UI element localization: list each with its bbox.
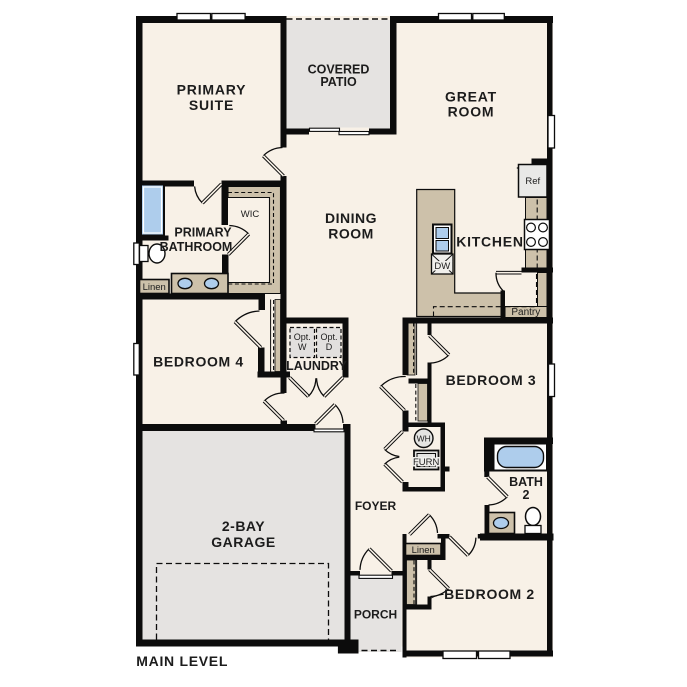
svg-text:BEDROOM 3: BEDROOM 3 bbox=[446, 372, 537, 388]
svg-text:FOYER: FOYER bbox=[355, 499, 397, 513]
svg-text:Linen: Linen bbox=[143, 282, 166, 293]
svg-text:MAIN LEVEL: MAIN LEVEL bbox=[136, 653, 228, 669]
svg-text:BATH: BATH bbox=[509, 475, 543, 489]
svg-text:ROOM: ROOM bbox=[328, 226, 374, 242]
svg-text:2-BAY: 2-BAY bbox=[222, 518, 265, 534]
svg-text:D: D bbox=[326, 342, 333, 352]
svg-text:GARAGE: GARAGE bbox=[211, 534, 275, 550]
svg-text:WH: WH bbox=[417, 433, 431, 443]
svg-text:PORCH: PORCH bbox=[354, 607, 397, 621]
svg-text:ROOM: ROOM bbox=[448, 104, 495, 120]
svg-text:LAUNDRY: LAUNDRY bbox=[286, 359, 347, 373]
svg-text:Pantry: Pantry bbox=[511, 307, 540, 318]
svg-text:Opt.: Opt. bbox=[294, 332, 311, 342]
svg-text:BEDROOM 2: BEDROOM 2 bbox=[444, 586, 535, 602]
svg-text:KITCHEN: KITCHEN bbox=[456, 234, 523, 250]
svg-text:BATHROOM: BATHROOM bbox=[160, 240, 233, 254]
svg-text:Ref: Ref bbox=[525, 176, 540, 187]
svg-text:GREAT: GREAT bbox=[445, 89, 497, 105]
svg-text:2: 2 bbox=[523, 488, 530, 502]
svg-text:FURN: FURN bbox=[413, 457, 440, 468]
svg-text:BEDROOM 4: BEDROOM 4 bbox=[153, 353, 244, 369]
svg-text:PRIMARY: PRIMARY bbox=[174, 226, 232, 240]
svg-text:Opt.: Opt. bbox=[320, 332, 337, 342]
svg-text:WIC: WIC bbox=[241, 209, 260, 220]
svg-text:PRIMARY: PRIMARY bbox=[177, 82, 247, 98]
svg-text:DW: DW bbox=[434, 261, 450, 272]
svg-text:W: W bbox=[298, 342, 307, 352]
svg-text:PATIO: PATIO bbox=[320, 75, 357, 89]
svg-text:Linen: Linen bbox=[412, 545, 435, 556]
svg-text:DINING: DINING bbox=[325, 210, 377, 226]
svg-text:SUITE: SUITE bbox=[189, 97, 234, 113]
